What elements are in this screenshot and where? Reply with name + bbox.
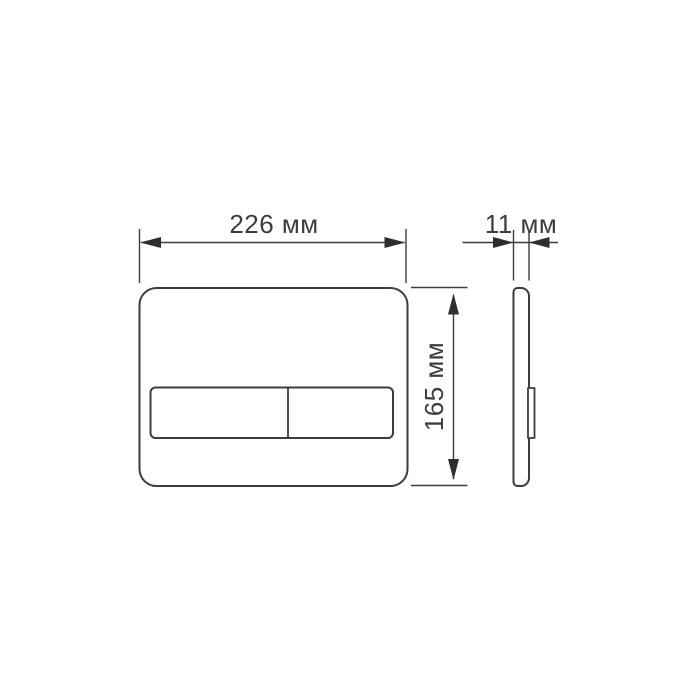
arrow-left-icon <box>140 237 161 248</box>
depth-dimension-label: 11 мм <box>485 209 557 239</box>
side-button-protrusion <box>528 388 535 438</box>
width-dimension: 226 мм <box>140 209 407 283</box>
arrow-right-icon <box>385 237 406 248</box>
height-dimension-label: 165 мм <box>419 342 449 431</box>
button-bar-outline <box>151 388 394 439</box>
height-dimension: 165 мм <box>411 288 468 486</box>
arrow-up-icon <box>448 294 459 315</box>
front-view <box>140 288 408 486</box>
plate-side-outline <box>514 288 530 486</box>
flush-plate-dimension-drawing: 226 мм 165 мм 11 мм <box>0 0 700 700</box>
side-view <box>514 288 535 486</box>
technical-drawing-page: 226 мм 165 мм 11 мм <box>0 0 700 700</box>
arrow-down-icon <box>448 459 459 480</box>
depth-dimension: 11 мм <box>463 209 559 281</box>
width-dimension-label: 226 мм <box>229 209 318 239</box>
